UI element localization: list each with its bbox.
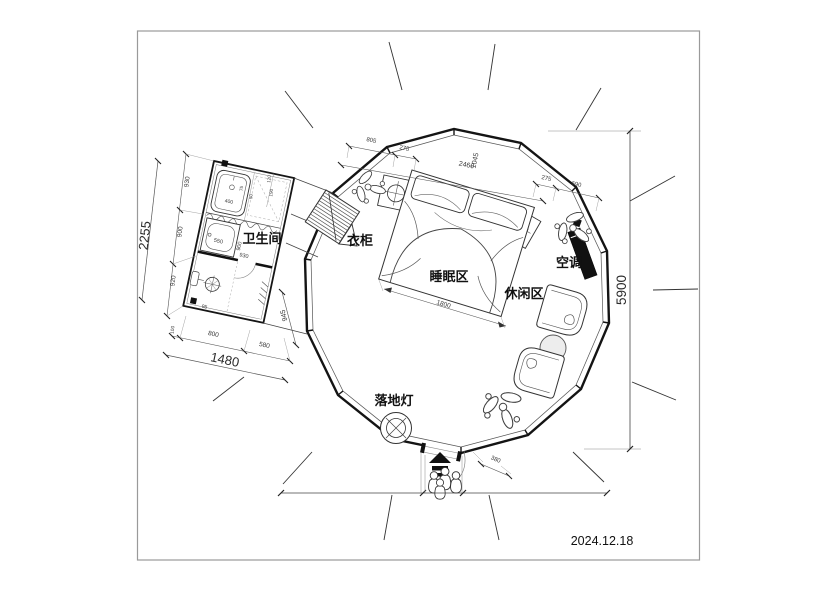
dim-bottom-total-text: 1480 xyxy=(209,349,240,370)
dim-entry-offset: 380 xyxy=(473,452,512,479)
blueprint-page: 550 900 930 400 75 50 120 190 95 xyxy=(0,0,837,592)
dim-height-text: 5900 xyxy=(614,275,629,305)
entrance xyxy=(420,443,465,500)
dim-bottom-total: 1480 xyxy=(163,349,288,383)
label-leisure-area: 休闲区 xyxy=(503,286,543,301)
label-floor-lamp: 落地灯 xyxy=(374,393,413,408)
dim-left-seg1: 930 xyxy=(183,176,191,188)
date-stamp: 2024.12.18 xyxy=(571,534,634,548)
dim-left-seg2: 900 xyxy=(176,226,184,238)
dim-380-text: 380 xyxy=(490,455,502,465)
dim-bath-diag: 945 xyxy=(279,289,299,348)
dim-bottom-seg0: 100 xyxy=(170,325,177,334)
label-bathroom: 卫生间 xyxy=(242,231,281,246)
people-icon xyxy=(429,467,462,499)
dim-left-total: 2255 xyxy=(136,158,161,303)
dim-top-seg1: 805 xyxy=(366,137,378,145)
dim-bottom-seg2: 580 xyxy=(258,341,270,350)
floor-lamp xyxy=(381,413,412,444)
dim-bath-t4: 190 xyxy=(268,188,274,196)
dim-bath-t3: 120 xyxy=(266,174,272,182)
dim-left-seg3: 920 xyxy=(169,275,177,287)
sink xyxy=(200,218,240,257)
floor-plan-drawing: 550 900 930 400 75 50 120 190 95 xyxy=(0,0,837,592)
label-air-conditioner: 空调 xyxy=(556,255,582,270)
dim-left-total-text: 2255 xyxy=(136,220,154,250)
dim-bottom-seg1: 800 xyxy=(207,330,219,339)
label-wardrobe: 衣柜 xyxy=(347,233,373,248)
dim-945-text: 945 xyxy=(280,309,290,322)
label-sleeping-area: 睡眠区 xyxy=(429,269,468,284)
